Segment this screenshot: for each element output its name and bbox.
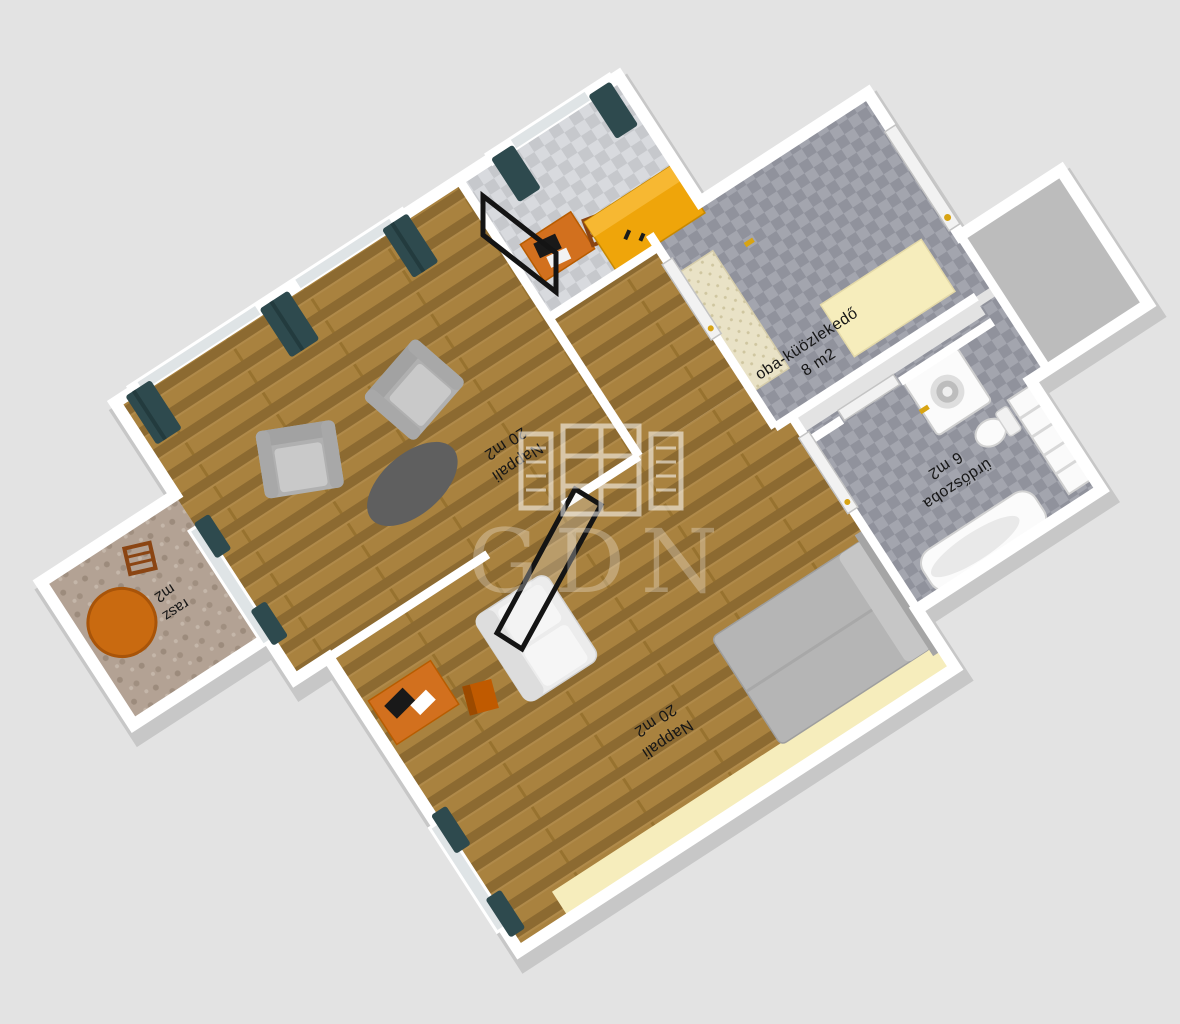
armchair: [255, 419, 345, 499]
floorplan-render: Nappali 20 m2 Nappali 20 m2 oba-küözleke…: [0, 0, 1180, 1024]
watermark-text: GDN: [468, 510, 734, 613]
floorplan-canvas: Nappali 20 m2 Nappali 20 m2 oba-küözleke…: [0, 0, 1180, 1024]
